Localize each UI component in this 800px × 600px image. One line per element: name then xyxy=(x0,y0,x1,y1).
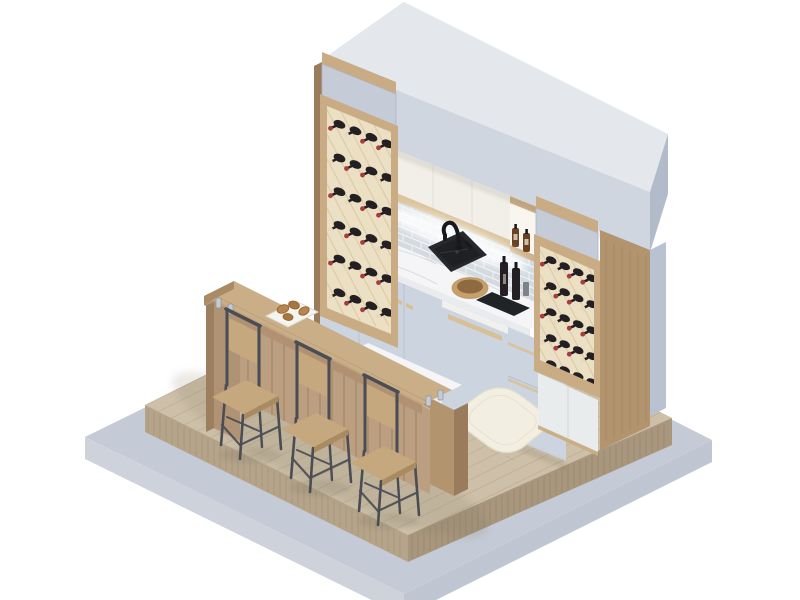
scene-canvas: Isometric 3D render of a small kitchenet… xyxy=(0,0,800,600)
bar-end-column-side xyxy=(454,403,468,496)
wooden-bowl xyxy=(452,278,488,299)
wall-right-edge xyxy=(650,242,666,416)
drinking-glass xyxy=(523,282,529,296)
right-wood-column xyxy=(600,230,650,450)
sink-drain xyxy=(455,250,458,253)
kitchen-isometric-render xyxy=(0,0,800,600)
bar-left-post-side xyxy=(206,302,214,432)
